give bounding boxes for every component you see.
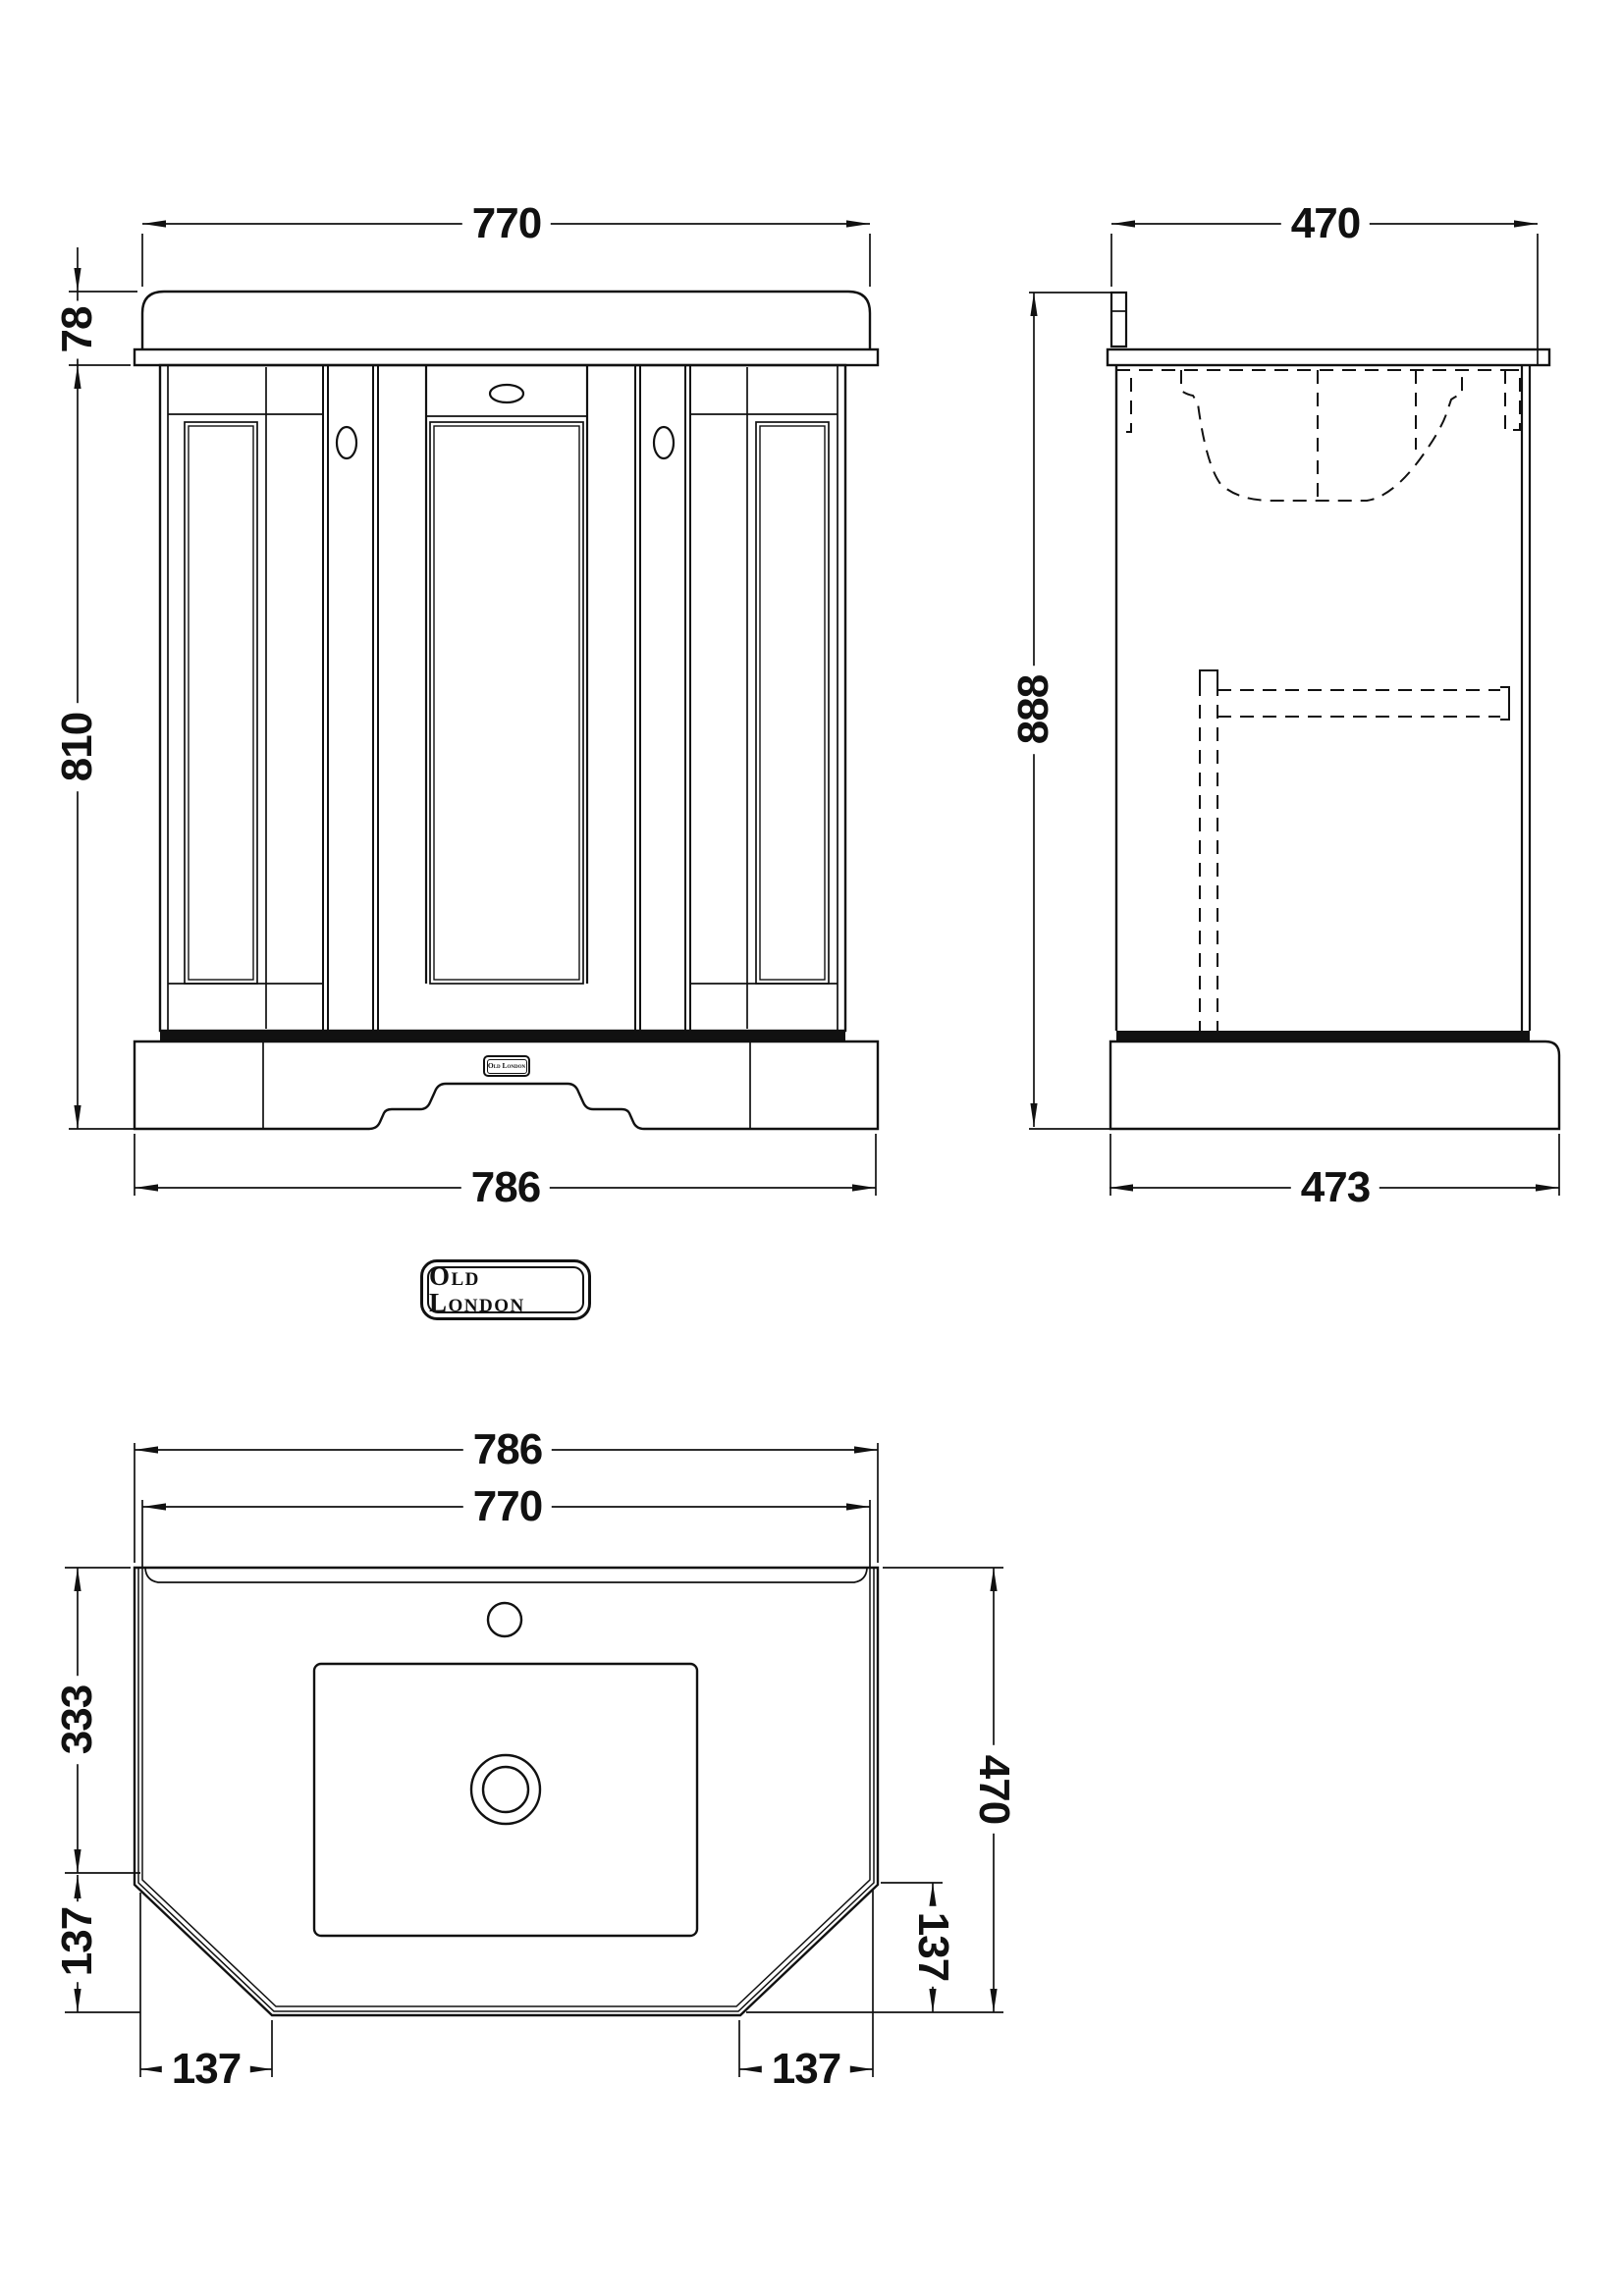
plan-view: [135, 1568, 878, 2015]
dim-front-cabinet-height: 810: [56, 703, 99, 791]
dim-plan-back-depth: 333: [56, 1676, 99, 1764]
technical-drawing-sheet: 770 78 810 786 470 888 473 786 770 333 1…: [0, 0, 1623, 2296]
dim-side-overall-height: 888: [1012, 666, 1055, 754]
dim-side-base-depth: 473: [1291, 1166, 1380, 1209]
brand-badge-text: Old London: [429, 1263, 582, 1316]
right-door-knob: [654, 427, 674, 458]
dim-front-basin-height: 78: [56, 301, 99, 359]
dim-plan-left-chamfer-horizontal: 137: [162, 2048, 250, 2091]
waste-hole-inner: [483, 1767, 528, 1812]
drawing-linework: [0, 0, 1623, 2296]
front-view: [135, 292, 878, 1129]
dim-plan-left-chamfer-vertical: 137: [56, 1901, 99, 1982]
side-view: [1108, 293, 1559, 1129]
dim-plan-overall-width: 786: [463, 1428, 552, 1471]
plan-dimensions: [65, 1443, 1003, 2077]
dim-front-top-width: 770: [462, 202, 551, 245]
plinth-logo-frame: Old London: [487, 1059, 527, 1074]
centre-drawer-knob: [490, 385, 523, 402]
plinth-logo-plate: Old London: [483, 1055, 530, 1077]
dim-plan-right-chamfer-vertical: 137: [911, 1906, 954, 1987]
left-door-knob: [337, 427, 356, 458]
dim-plan-right-chamfer-horizontal: 137: [762, 2048, 850, 2091]
brand-badge: Old London: [420, 1259, 591, 1320]
dim-plan-basin-width: 770: [463, 1485, 552, 1528]
plinth-logo-text: Old London: [488, 1062, 525, 1070]
dim-side-top-depth: 470: [1281, 202, 1370, 245]
dim-plan-overall-depth: 470: [972, 1745, 1015, 1834]
brand-badge-frame: Old London: [427, 1266, 584, 1313]
tap-hole: [488, 1603, 521, 1636]
waste-hole-outer: [471, 1755, 540, 1824]
dim-front-base-width: 786: [461, 1166, 550, 1209]
